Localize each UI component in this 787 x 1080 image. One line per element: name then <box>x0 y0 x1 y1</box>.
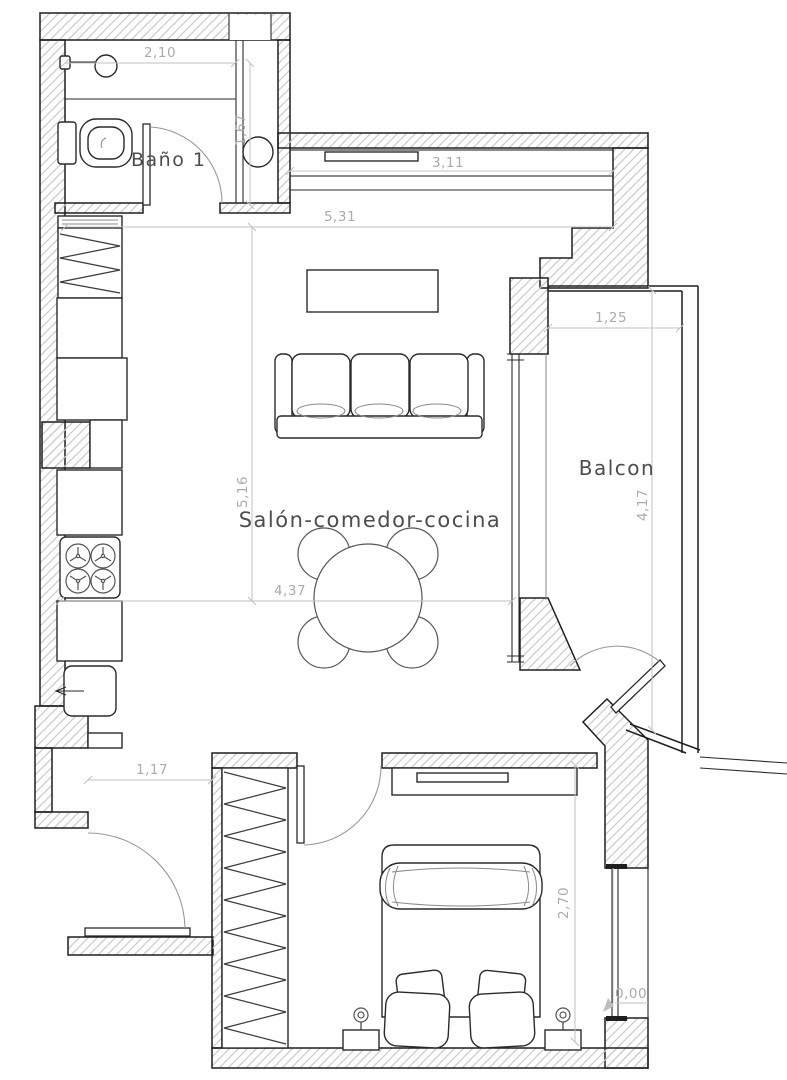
counter-end <box>88 733 122 748</box>
toilet <box>58 119 132 167</box>
dim-entry-width: 1,17 <box>136 762 168 778</box>
cabinet-5 <box>57 601 122 661</box>
entry-door-leaf <box>85 928 190 936</box>
dining-set <box>298 528 438 668</box>
cabinet-1 <box>57 298 122 358</box>
toilet-seat <box>88 127 124 159</box>
dim-dining-width: 4,37 <box>274 583 306 599</box>
dim-window-width: 3,11 <box>432 155 464 171</box>
living-furniture <box>275 152 484 668</box>
label-balcony: Balcon <box>579 456 655 480</box>
shaft-top-opening <box>229 15 271 40</box>
wall-bath-bottom-left <box>55 203 143 213</box>
wall-living-top <box>278 133 648 148</box>
wall-kitchen-chimney <box>42 422 90 468</box>
wall-bedroom-top-right <box>382 753 597 768</box>
label-living: Salón-comedor-cocina <box>239 508 502 532</box>
wall-shelf <box>325 152 418 161</box>
bed-blanket-roll <box>380 863 542 909</box>
bedroom-furniture <box>222 768 581 1050</box>
pillow-left-front <box>384 991 451 1048</box>
wall-diagonal-lower <box>583 699 648 868</box>
kitchen-sink <box>56 666 116 716</box>
sofa-back-1 <box>292 354 350 418</box>
wall-left-lower <box>35 748 52 812</box>
lamp-left-bulb <box>358 1012 364 1018</box>
wall-entry-jamb <box>35 812 88 828</box>
bedroom-window-cap-top <box>606 864 627 869</box>
bedroom-window-cap-bottom <box>606 1016 627 1021</box>
stove <box>60 537 120 598</box>
bedroom-door-leaf <box>297 766 304 843</box>
wall-right-column <box>540 148 648 288</box>
toilet-tank <box>58 122 76 164</box>
vent-shelf-box <box>58 216 122 228</box>
dim-level: 0,00 <box>615 986 647 1002</box>
floor-plan-page: 2,10 1,67 3,11 5,31 1,25 5,16 4,17 4,37 … <box>0 0 787 1080</box>
cabinet-4 <box>57 470 122 535</box>
wall-bedroom-top-left <box>212 753 297 768</box>
dim-bedroom-height: 2,70 <box>556 887 572 919</box>
building-edge <box>700 757 787 774</box>
sideboard-handle <box>417 773 508 782</box>
balcony-door-arc <box>570 646 660 666</box>
balcony-door-leaf <box>611 660 665 713</box>
dining-table <box>314 544 422 652</box>
kitchen-units <box>56 216 127 748</box>
dim-balcony-width: 1,25 <box>595 310 627 326</box>
vent-shelf <box>58 216 122 228</box>
nightstand-left <box>343 1008 379 1050</box>
dim-living-height: 5,16 <box>235 476 251 508</box>
sofa-front <box>277 416 482 438</box>
entry-door-arc <box>88 833 185 928</box>
wall-bath-bottom-right <box>220 203 290 213</box>
dim-shaft-height: 1,67 <box>233 114 249 146</box>
room-labels: Baño 1 Salón-comedor-cocina Balcon <box>131 149 655 532</box>
dim-living-width: 5,31 <box>324 209 356 225</box>
wall-entry-bottom <box>68 937 213 955</box>
tv-unit <box>307 270 438 312</box>
double-bed <box>380 845 542 1049</box>
label-bathroom: Baño 1 <box>131 149 206 171</box>
wall-bedroom-bottom <box>212 1048 648 1068</box>
sink <box>60 55 117 77</box>
cabinet-2 <box>57 358 127 420</box>
cabinet-3 <box>90 420 122 468</box>
balcony-right-rail <box>682 286 698 753</box>
nightstand-left-box <box>343 1030 379 1050</box>
floor-plan-drawing: 2,10 1,67 3,11 5,31 1,25 5,16 4,17 4,37 … <box>0 0 787 1080</box>
sideboard <box>392 768 577 795</box>
dim-bath-width: 2,10 <box>144 45 176 61</box>
sink-basin <box>95 55 117 77</box>
sofa <box>275 354 484 438</box>
kitchen-appliance <box>58 228 122 298</box>
wall-balcony-pier <box>510 278 548 354</box>
dim-balcony-height: 4,17 <box>635 489 651 521</box>
nightstand-right-box <box>545 1030 581 1050</box>
wardrobe <box>222 768 288 1048</box>
wall-bedroom-left <box>212 768 222 1048</box>
nightstand-right <box>545 1008 581 1050</box>
wall-shaft-right <box>278 40 290 203</box>
lamp-right-bulb <box>560 1012 566 1018</box>
bedroom-door-arc <box>304 766 381 845</box>
pillow-right <box>469 970 536 1049</box>
sofa-back-2 <box>351 354 409 418</box>
wall-diagonal-upper <box>520 598 580 670</box>
pillow-right-front <box>469 991 536 1048</box>
